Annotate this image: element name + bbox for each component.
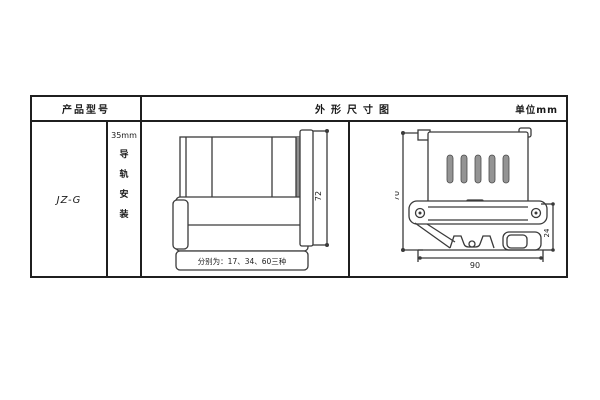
divider-mount-drawings bbox=[140, 97, 142, 276]
front-height-dimension bbox=[311, 129, 329, 247]
side-height-dimension-label: 70 bbox=[395, 191, 401, 201]
front-view-linework bbox=[173, 129, 329, 270]
din-rail-profile bbox=[415, 223, 543, 250]
header-product-model: 产品型号 bbox=[32, 97, 140, 120]
mount-label-char-2: 轨 bbox=[119, 170, 128, 180]
mount-label-char-1: 导 bbox=[119, 150, 128, 160]
mounting-column: 35mm 导 轨 安 装 bbox=[108, 122, 140, 278]
mount-label-char-3: 安 bbox=[119, 190, 128, 200]
front-view-drawing: 72 分别为：17、34、60三种 bbox=[160, 125, 346, 275]
header-outline-drawing: 外形尺寸图 bbox=[140, 97, 570, 120]
side-view-drawing: 70 90 24 bbox=[395, 120, 570, 275]
right-mounting-flange bbox=[300, 130, 313, 246]
rail-size-label: 35mm bbox=[111, 131, 137, 140]
side-clip-dimension-label: 24 bbox=[543, 228, 551, 237]
din-rail-clamp bbox=[409, 201, 547, 224]
side-height-dimension bbox=[401, 131, 423, 252]
side-width-dimension-label: 90 bbox=[470, 261, 480, 270]
front-height-dimension-label: 72 bbox=[314, 191, 323, 201]
divider-front-side-views bbox=[348, 122, 350, 276]
mount-label-char-4: 装 bbox=[119, 210, 128, 220]
left-mounting-tab bbox=[173, 200, 188, 249]
header-unit-label: 单位mm bbox=[515, 97, 558, 120]
side-view-linework bbox=[401, 128, 555, 262]
front-view-caption: 分别为：17、34、60三种 bbox=[198, 256, 287, 266]
side-width-dimension bbox=[418, 250, 543, 262]
front-view-body bbox=[180, 137, 307, 198]
side-view-body bbox=[418, 128, 531, 204]
product-model-value: JZ-G bbox=[32, 122, 106, 278]
spec-sheet-page: 产品型号 外形尺寸图 单位mm JZ-G 35mm 导 轨 安 装 bbox=[0, 0, 600, 400]
